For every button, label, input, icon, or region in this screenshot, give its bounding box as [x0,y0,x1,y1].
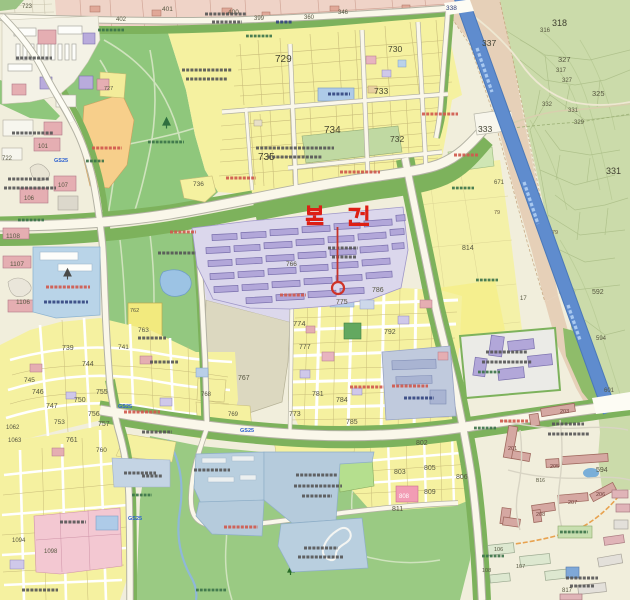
svg-text:337: 337 [482,38,496,48]
svg-text:594: 594 [596,336,607,342]
svg-text:399: 399 [254,16,265,22]
svg-text:1098: 1098 [44,549,58,555]
svg-text:325: 325 [592,89,605,98]
svg-text:784: 784 [336,397,348,404]
svg-text:671: 671 [494,180,505,186]
svg-text:205: 205 [550,464,559,470]
svg-text:786: 786 [372,287,384,294]
svg-text:333: 333 [478,124,492,134]
svg-text:809: 809 [424,489,436,496]
svg-text:327: 327 [558,55,571,64]
svg-text:775: 775 [336,299,348,306]
svg-text:774: 774 [293,319,306,328]
svg-text:722: 722 [2,156,13,162]
svg-text:734: 734 [324,125,341,136]
svg-text:207: 207 [568,500,577,506]
svg-text:206: 206 [596,492,605,498]
svg-text:767: 767 [238,375,250,382]
svg-text:756: 756 [88,411,100,418]
svg-text:736: 736 [193,181,204,188]
svg-text:400: 400 [228,9,239,16]
svg-text:761: 761 [66,437,78,444]
svg-text:107: 107 [58,183,69,189]
svg-text:GS25: GS25 [240,428,254,434]
svg-text:732: 732 [390,134,404,144]
svg-text:792: 792 [384,329,396,336]
svg-text:739: 739 [62,345,74,352]
svg-text:318: 318 [552,18,567,28]
svg-text:208: 208 [536,512,545,518]
svg-text:768: 768 [201,392,212,398]
svg-text:327: 327 [562,78,573,84]
svg-text:79: 79 [494,210,500,216]
svg-text:729: 729 [275,54,292,65]
svg-text:316: 316 [540,28,551,34]
svg-text:360: 360 [304,15,315,21]
svg-text:601: 601 [604,388,615,394]
svg-text:108: 108 [482,568,491,574]
svg-text:106: 106 [494,547,503,553]
svg-text:723: 723 [22,4,33,10]
svg-text:762: 762 [130,308,139,314]
svg-text:781: 781 [312,391,324,398]
svg-text:401: 401 [162,6,173,13]
svg-text:803: 803 [394,469,406,476]
svg-text:755: 755 [96,389,108,396]
svg-text:753: 753 [54,419,65,426]
svg-text:17: 17 [520,296,527,302]
svg-text:757: 757 [98,421,110,428]
svg-text:744: 744 [82,361,94,368]
svg-text:745: 745 [24,377,35,384]
svg-text:760: 760 [96,447,107,454]
svg-text:1062: 1062 [6,425,20,431]
svg-text:107: 107 [516,564,525,570]
svg-text:B16: B16 [536,478,545,484]
svg-text:332: 332 [542,102,553,108]
svg-text:814: 814 [462,245,474,252]
svg-text:203: 203 [560,409,569,415]
svg-text:817: 817 [562,588,573,594]
svg-text:806: 806 [456,474,468,481]
svg-text:594: 594 [596,467,608,474]
svg-text:338: 338 [446,5,457,12]
svg-text:730: 730 [388,44,402,54]
svg-text:GS25: GS25 [54,158,68,164]
svg-text:733: 733 [374,86,388,96]
svg-text:750: 750 [74,397,86,404]
svg-text:GS25: GS25 [128,516,142,522]
svg-text:1106: 1106 [16,299,30,306]
svg-text:808: 808 [399,494,410,500]
svg-text:1094: 1094 [12,538,26,544]
svg-text:763: 763 [138,327,149,334]
svg-text:101: 101 [38,144,49,150]
svg-text:811: 811 [392,506,403,513]
svg-text:802: 802 [416,440,428,447]
svg-text:346: 346 [338,10,349,16]
svg-text:331: 331 [568,108,579,114]
svg-text:805: 805 [424,465,436,472]
svg-text:331: 331 [606,166,621,176]
svg-text:592: 592 [592,289,604,296]
svg-text:79: 79 [552,230,558,236]
svg-text:766: 766 [286,261,297,268]
svg-text:1107: 1107 [10,261,24,268]
svg-text:GS25: GS25 [118,404,132,410]
svg-text:106: 106 [24,196,35,202]
svg-text:1108: 1108 [6,233,20,240]
svg-text:317: 317 [556,68,567,74]
svg-text:727: 727 [104,86,113,92]
svg-text:741: 741 [118,344,129,351]
svg-text:1063: 1063 [8,438,22,444]
svg-text:769: 769 [228,412,239,418]
svg-text:746: 746 [32,389,44,396]
svg-text:402: 402 [116,17,127,23]
svg-text:329: 329 [574,120,585,126]
svg-text:201: 201 [508,446,517,452]
svg-text:747: 747 [46,403,58,410]
svg-text:785: 785 [346,419,358,426]
svg-text:777: 777 [299,344,311,351]
svg-text:773: 773 [289,411,301,418]
